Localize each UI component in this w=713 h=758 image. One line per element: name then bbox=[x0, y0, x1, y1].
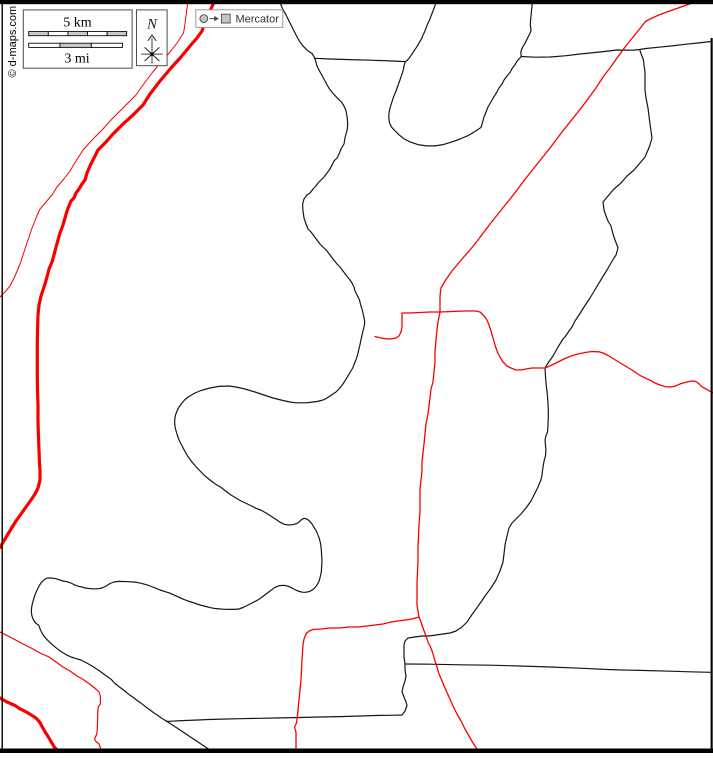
svg-text:N: N bbox=[146, 17, 158, 33]
svg-text:3 mi: 3 mi bbox=[64, 51, 89, 66]
svg-text:Mercator: Mercator bbox=[236, 14, 280, 26]
svg-text:5 km: 5 km bbox=[63, 15, 92, 30]
svg-text:© d-maps.com: © d-maps.com bbox=[7, 6, 19, 78]
